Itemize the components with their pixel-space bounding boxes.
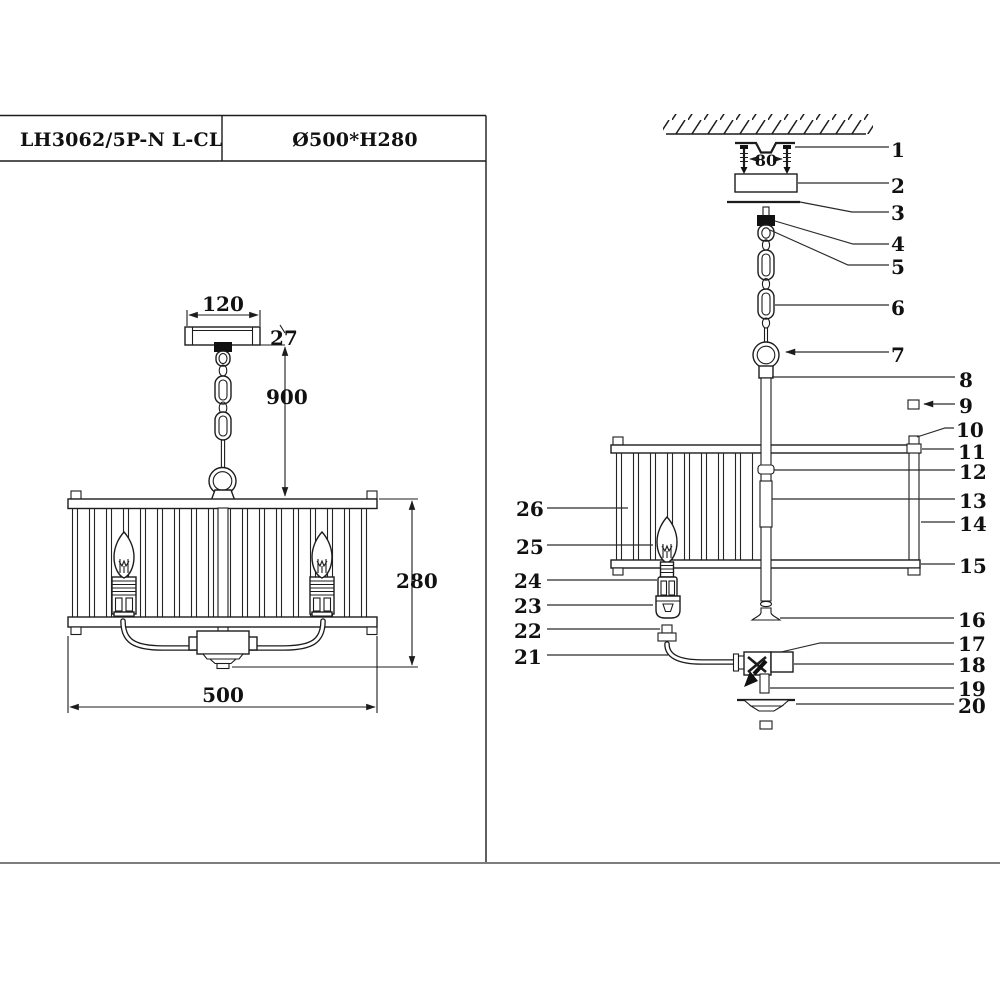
finial-nut (760, 721, 772, 729)
shade-glass-rods (613, 453, 757, 560)
part-callout-16: 16 (958, 608, 986, 632)
part-callout-13: 13 (959, 489, 987, 513)
small-fastener (908, 400, 919, 409)
part-callout-14: 14 (959, 512, 987, 536)
size-spec: Ø500*H280 (292, 129, 418, 151)
part-callout-15: 15 (959, 554, 987, 578)
washer (761, 601, 772, 606)
arm-connector-plate (658, 633, 676, 641)
part-callout-8: 8 (959, 368, 973, 392)
title-block: LH3062/5P-N L-CL Ø500*H280 (20, 129, 418, 151)
ceiling-hatch (663, 114, 873, 134)
exploded-view: 80 (514, 114, 987, 729)
hub-pin (760, 674, 769, 693)
part-callout-6: 6 (891, 296, 905, 320)
rim-tab (367, 627, 377, 635)
center-rod (218, 508, 228, 632)
dim-27-label: 27 (270, 326, 298, 350)
front-shade-drum (68, 491, 377, 635)
exploded-arm (658, 625, 745, 671)
dim-80-label: 80 (755, 151, 777, 170)
part-callout-2: 2 (891, 174, 905, 198)
rim-tab (908, 568, 920, 575)
dim-280-label: 280 (396, 569, 438, 593)
rod-collar (758, 465, 774, 474)
shade-top-rim (68, 499, 377, 509)
ring-connector (212, 490, 235, 500)
mounting-screw (740, 145, 748, 174)
part-callout-20: 20 (958, 694, 986, 718)
finial-dome (744, 700, 789, 706)
drawing-sheet: LH3062/5P-N L-CL Ø500*H280 120 27 900 (0, 0, 1000, 1000)
rod-end-flare (752, 608, 780, 620)
part-callout-22: 22 (514, 619, 542, 643)
front-hook-and-chain (209, 342, 236, 500)
suspension-wire (765, 328, 768, 343)
part-callout-25: 25 (516, 535, 544, 559)
front-view: 120 27 900 (68, 292, 438, 713)
shade-bottom-rim (68, 617, 377, 627)
dim-suspension-height: 900 (260, 345, 308, 496)
dim-120-label: 120 (202, 292, 244, 316)
dim-canopy-height: 27 (270, 325, 298, 350)
rod-top-block (759, 366, 773, 378)
post-cap (907, 444, 921, 453)
hub-side-box (771, 652, 793, 672)
side-post (909, 453, 919, 560)
mounting-bracket: 80 (735, 143, 795, 174)
model-number: LH3062/5P-N L-CL (20, 129, 222, 151)
canopy-box (735, 174, 797, 192)
socket-cup (656, 596, 680, 618)
part-callout-23: 23 (514, 594, 542, 618)
rim-tab (367, 491, 377, 499)
dim-canopy-width: 120 (187, 292, 260, 326)
arm-connector (662, 625, 672, 633)
part-callout-9: 9 (959, 394, 973, 418)
hub-body (197, 631, 249, 654)
technical-drawing: LH3062/5P-N L-CL Ø500*H280 120 27 900 (0, 0, 1000, 1000)
part-callout-3: 3 (891, 201, 905, 225)
rim-tab (613, 437, 623, 445)
hub-cone (210, 659, 236, 664)
arm-end-flange (734, 654, 739, 671)
part-callout-5: 5 (891, 255, 905, 279)
suspension-wire (221, 440, 224, 468)
part-callout-7: 7 (891, 343, 905, 367)
exploded-hub (737, 652, 795, 729)
dim-mount-hole-spacing: 80 (750, 151, 782, 170)
hub-stem (217, 664, 229, 669)
part-callout-10: 10 (956, 418, 984, 442)
part-callout-1: 1 (891, 138, 905, 162)
sheet-frame (0, 116, 1000, 864)
part-callout-18: 18 (958, 653, 986, 677)
dim-500-label: 500 (202, 683, 244, 707)
part-callout-26: 26 (516, 497, 544, 521)
mounting-screw (783, 145, 791, 174)
part-callout-24: 24 (514, 569, 542, 593)
part-callout-21: 21 (514, 645, 542, 669)
rim-tab (71, 627, 81, 635)
part-callouts: 1 2 3 4 5 6 7 8 9 10 11 12 13 14 15 16 1… (514, 138, 987, 718)
rim-tab (71, 491, 81, 499)
dim-900-label: 900 (266, 385, 308, 409)
hook-stem (763, 207, 769, 216)
rim-tab (613, 568, 623, 575)
part-callout-4: 4 (891, 232, 905, 256)
rod-sleeve (760, 481, 772, 527)
part-callout-12: 12 (959, 460, 987, 484)
